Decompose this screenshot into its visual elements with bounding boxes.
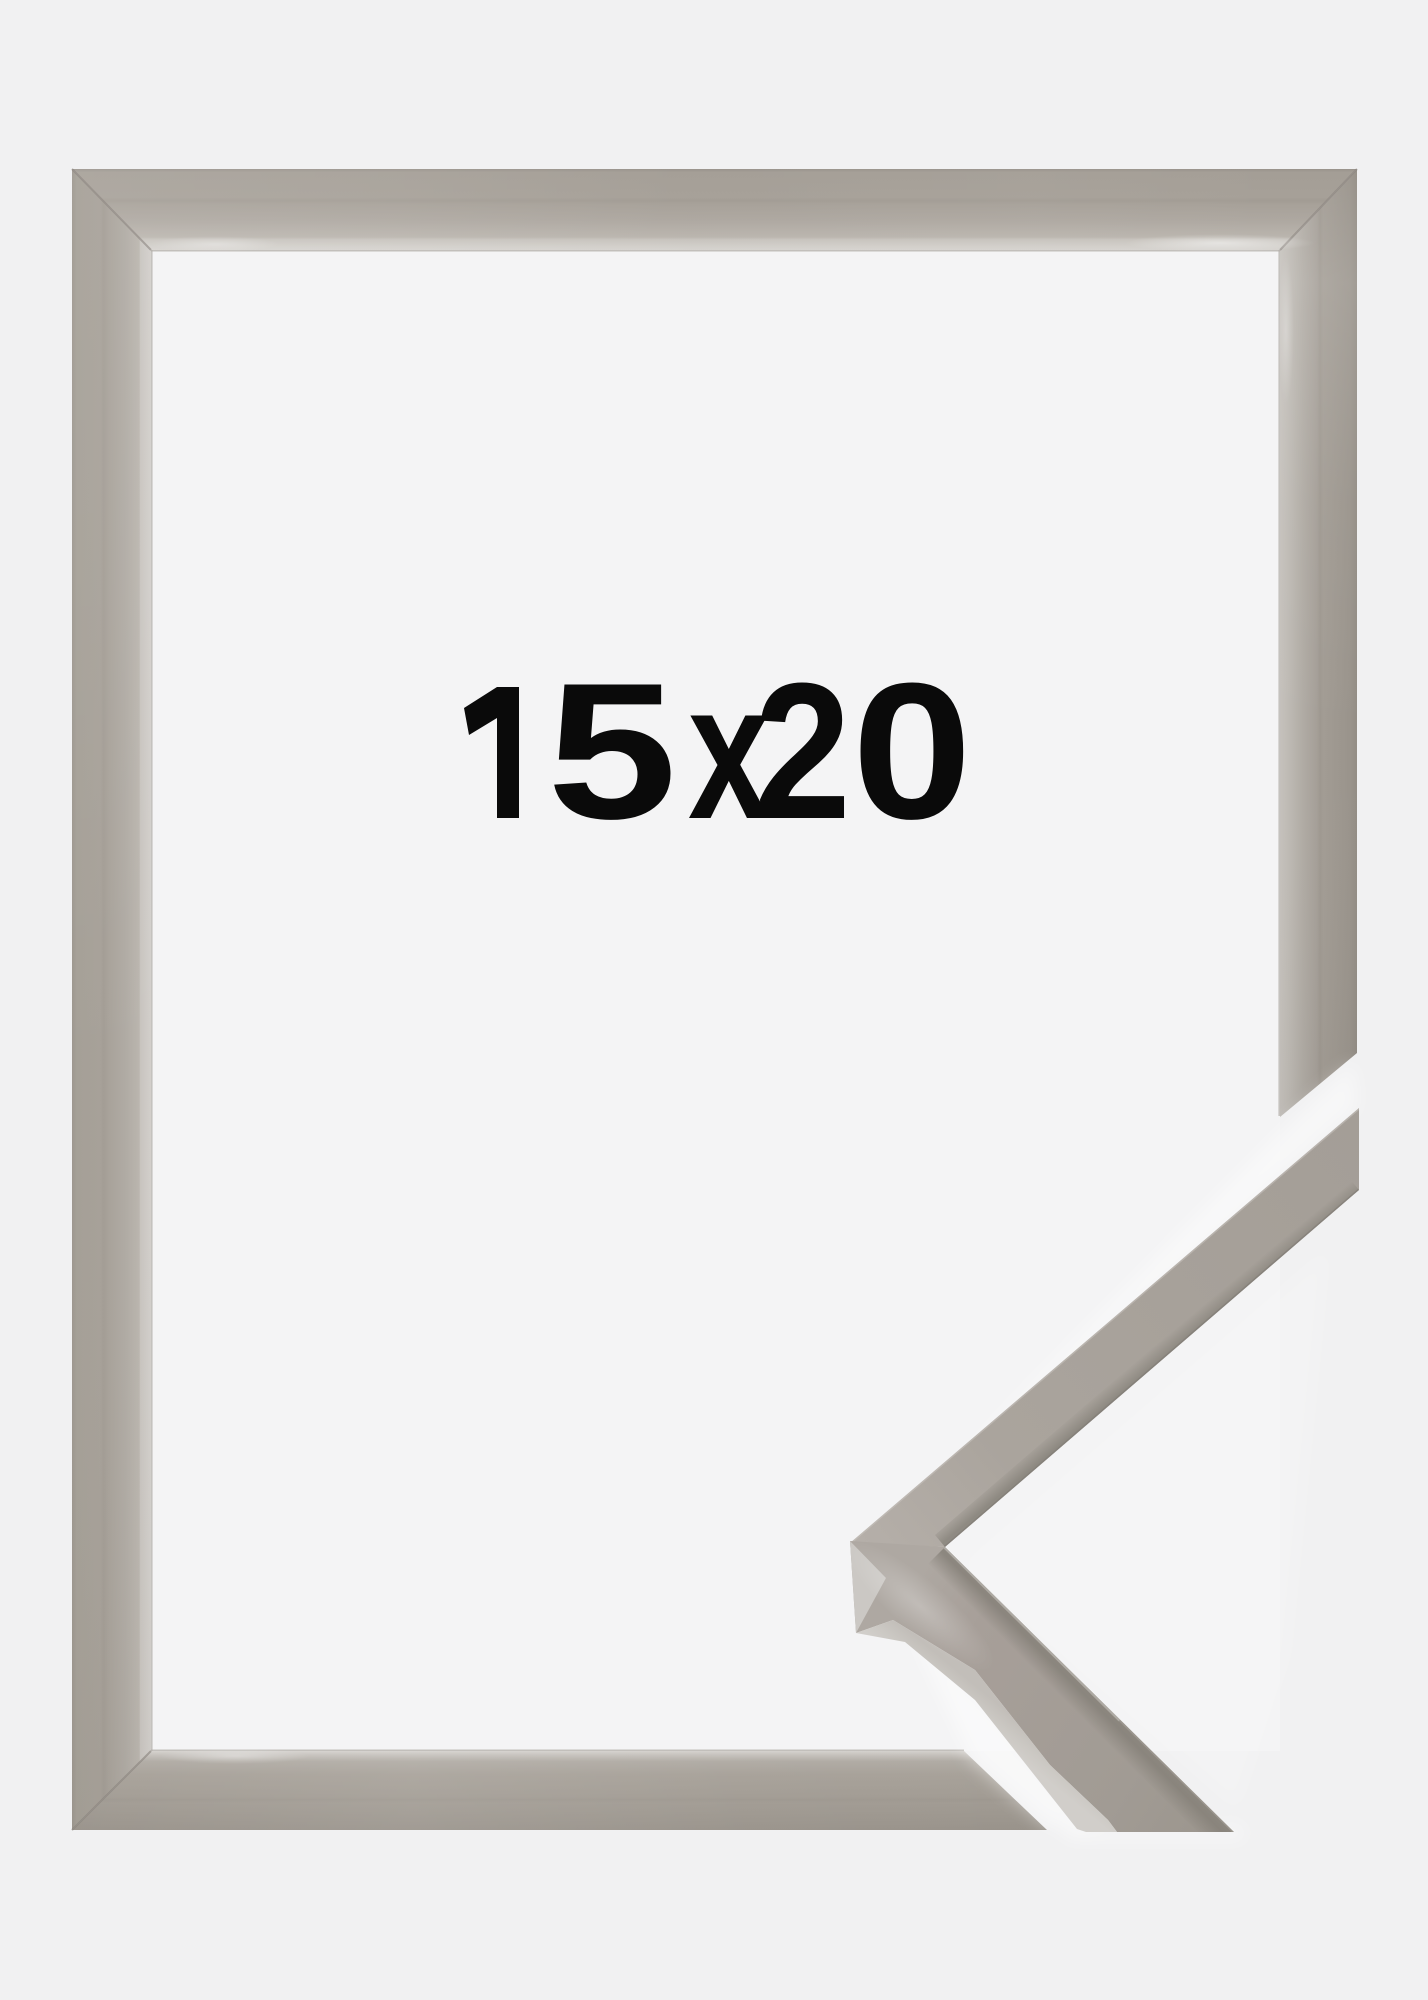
svg-text:2: 2 (754, 643, 851, 860)
svg-text:0: 0 (852, 643, 972, 860)
svg-text:5: 5 (547, 643, 677, 860)
